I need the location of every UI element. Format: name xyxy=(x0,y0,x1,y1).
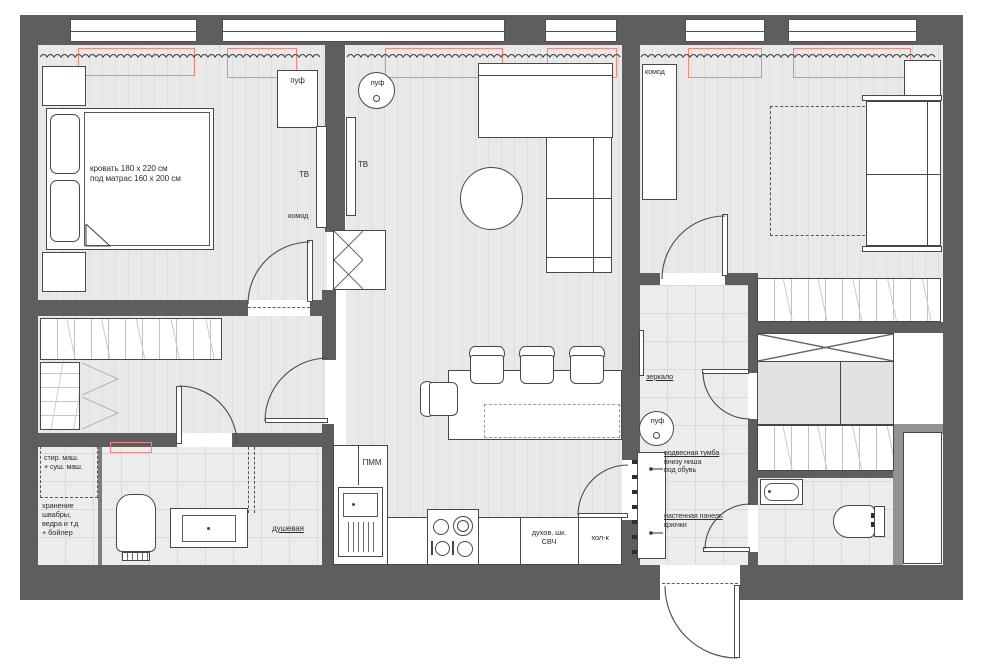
nightstand xyxy=(42,66,86,106)
entry-door-leaf xyxy=(734,585,740,658)
wall-walkin-bath-a xyxy=(38,433,177,447)
tall-cabinet xyxy=(903,432,942,564)
bedroom1-door-leaf xyxy=(307,240,313,302)
pouf-label: пуф xyxy=(279,76,316,86)
storage-label: хранение швабры, ведра и т.д + бойлер xyxy=(42,502,104,538)
floor-plan: кровать 180 x 220 см под матрас 160 x 20… xyxy=(0,0,988,672)
dresser-label-bedroom1: комод xyxy=(288,212,318,221)
toilet-2-button xyxy=(871,522,874,527)
wall-walkin-bath-b xyxy=(232,433,325,447)
shower-label: душевая xyxy=(258,524,318,534)
tv-label-bedroom1: ТВ xyxy=(299,170,315,180)
desk-divider xyxy=(840,361,841,425)
floor-lamp-icon xyxy=(373,95,380,102)
faucet-dot xyxy=(207,527,210,530)
burner-bracket xyxy=(452,541,454,555)
toilet-base xyxy=(122,552,150,561)
wall-bedroom1-walkin-a xyxy=(38,300,248,316)
toilet-2 xyxy=(833,505,875,538)
pouf-label-hallway: пуф xyxy=(640,416,675,425)
oven-label: духов. шк. СВЧ xyxy=(521,528,577,546)
wall-living-hallway xyxy=(622,45,640,460)
window xyxy=(685,19,765,42)
outer-wall-bottom xyxy=(20,565,963,600)
chair xyxy=(420,380,458,418)
dishwasher-label: ПММ xyxy=(357,458,387,468)
sofa-horizontal xyxy=(478,63,613,138)
mirror xyxy=(639,330,644,376)
pillow xyxy=(50,114,80,174)
entry-cabinet xyxy=(637,452,666,559)
bed2 xyxy=(866,101,941,246)
dresser-label-bedroom2: комод xyxy=(645,68,676,77)
pillow xyxy=(50,180,80,242)
bed-projection xyxy=(770,106,870,236)
bathroom1-door-leaf xyxy=(176,386,182,444)
toilet-2-button xyxy=(871,513,874,518)
bed2-rail-bottom xyxy=(862,246,942,252)
sink-cabinet-door xyxy=(343,493,378,517)
wardrobe-row-section xyxy=(757,425,894,471)
bedroom2-door-leaf xyxy=(722,214,728,276)
bed-size-label: кровать 180 x 220 см под матрас 160 x 20… xyxy=(90,164,240,184)
toilet-2-tank xyxy=(874,506,885,537)
burner xyxy=(457,541,473,557)
coffee-table xyxy=(460,167,523,230)
shelf-unit xyxy=(40,362,80,430)
burner xyxy=(433,519,449,535)
tub-faucet-dot xyxy=(768,490,771,493)
tv-console-living xyxy=(346,117,356,216)
hook-strip xyxy=(632,458,637,554)
stove xyxy=(427,509,479,565)
window xyxy=(70,19,197,42)
chair xyxy=(518,346,556,384)
niche-marker xyxy=(110,442,152,453)
wall-bedroom1-walkin-b xyxy=(310,300,327,316)
wall-panel-label: настенная панелькрючки xyxy=(664,512,750,529)
shelf-x-glyph xyxy=(758,334,893,361)
shelf-x-box xyxy=(334,231,363,260)
wardrobe-rack xyxy=(40,318,222,360)
wall-section-bath2 xyxy=(755,471,893,478)
wall-hallway-right-3 xyxy=(748,552,758,565)
wardrobe-row-bedroom2 xyxy=(757,278,941,322)
bench-outline xyxy=(484,404,620,438)
toilet xyxy=(116,494,156,552)
shelf-x-box xyxy=(334,260,363,289)
corner-nightstand xyxy=(904,60,941,96)
shower-partition xyxy=(248,447,255,513)
sofa-vertical xyxy=(546,137,612,273)
fridge-label: хол-к xyxy=(579,533,621,542)
walkin-door-leaf xyxy=(265,418,328,423)
wall-bedroom1-living xyxy=(325,45,345,232)
outer-wall-left xyxy=(20,15,38,600)
sink-cabinet-vent xyxy=(344,522,377,552)
radiator xyxy=(688,48,762,78)
burner-bracket xyxy=(431,541,433,555)
tv-label-living: ТВ xyxy=(358,160,374,170)
section-door-leaf xyxy=(702,369,749,374)
bathroom2-door-leaf xyxy=(703,547,750,552)
burner-double xyxy=(453,516,473,536)
niche-wall-side xyxy=(893,432,903,565)
window xyxy=(545,19,617,42)
radiator xyxy=(78,48,195,76)
burner xyxy=(435,541,450,556)
window xyxy=(788,19,917,42)
entry-threshold xyxy=(662,583,738,586)
dresser-bedroom2 xyxy=(642,64,677,200)
pouf-leg-icon xyxy=(653,432,660,439)
wall-bedroom2-bottom xyxy=(755,322,943,333)
washer-label: стир. маш. + суш. маш. xyxy=(44,454,98,471)
mirror-label: зеркало xyxy=(646,372,706,381)
desk-unit xyxy=(757,361,894,425)
outer-wall-right xyxy=(943,15,963,600)
chair xyxy=(568,346,606,384)
window xyxy=(222,19,505,42)
wall-bedroom2-hallway-a xyxy=(640,273,660,285)
bedroom1-door-threshold xyxy=(248,307,310,310)
bedroom2-door-opening xyxy=(660,273,725,285)
entry-cabinet-label: подвесная тумбавнизу ниша под обувь xyxy=(664,449,750,475)
knob-dot xyxy=(352,503,355,506)
nightstand xyxy=(42,252,86,292)
chair xyxy=(468,346,506,384)
radiator xyxy=(793,48,911,78)
pouf-label-living: пуф xyxy=(359,78,396,87)
